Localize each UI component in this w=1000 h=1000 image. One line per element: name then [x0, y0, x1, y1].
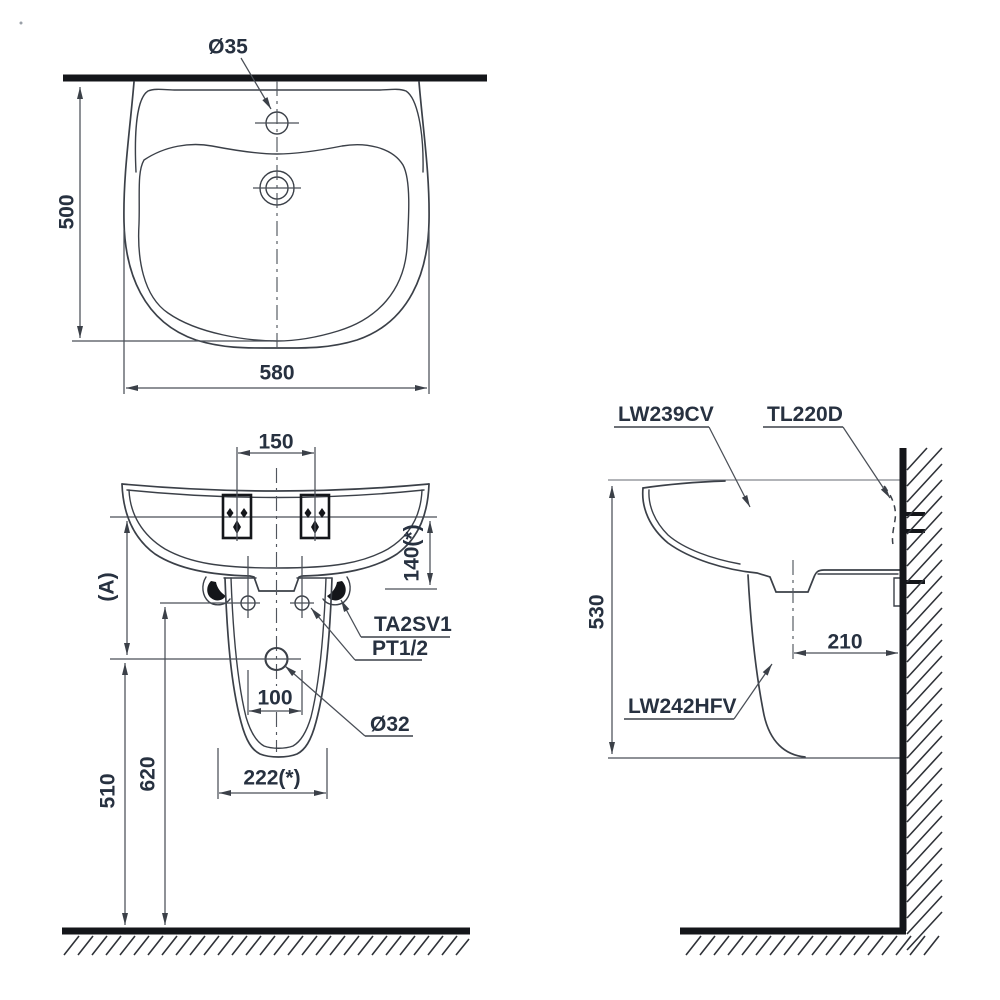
- dim-label-ref-height: (A): [96, 572, 119, 601]
- leader-basin-code: [709, 427, 750, 507]
- dim-label-pedestal-width: 222(*): [243, 767, 300, 790]
- label-thread-code: PT1/2: [372, 637, 428, 660]
- technical-drawing-svg: 500 580 Ø35 150: [0, 0, 1000, 1000]
- side-view: 530 210 LW239CV TL220D LW242HFV: [586, 403, 943, 955]
- dim-label-rim-height: 530: [586, 594, 609, 629]
- leader-thread-code: [311, 608, 355, 660]
- angle-valve-dashed: [884, 486, 895, 548]
- dim-label-width: 580: [259, 362, 294, 385]
- basin-top-side: [643, 481, 725, 488]
- label-valve-code: TL220D: [767, 403, 843, 426]
- dim-label-depth: 500: [56, 194, 79, 229]
- label-pedestal-code: LW242HFV: [628, 695, 737, 718]
- label-basin-code: LW239CV: [618, 403, 714, 426]
- stray-mark: [20, 22, 23, 25]
- dim-label-bolt-height: 620: [137, 756, 160, 791]
- basin-inner-side: [649, 490, 740, 564]
- lavatory-installation-drawing: 500 580 Ø35 150: [0, 0, 1000, 1000]
- rim-outer-front: [122, 484, 429, 491]
- dim-label-bolt-pitch: 100: [257, 687, 292, 710]
- basin-body-front: [122, 484, 429, 591]
- front-view: 150 (A) 510 620: [62, 431, 470, 956]
- floor-hatch-side: [686, 936, 939, 955]
- label-bracket-code: TA2SV1: [374, 613, 452, 636]
- hook-left: [207, 581, 226, 600]
- floor-hatch-front: [64, 936, 469, 955]
- label-drain-dia: Ø32: [370, 713, 410, 736]
- leader-pedestal-code: [734, 664, 772, 719]
- bowl-outline-plan: [139, 145, 409, 341]
- leader-valve-code: [843, 427, 890, 498]
- basin-inner-rim-plan: [135, 89, 423, 172]
- label-faucet-hole-dia: Ø35: [208, 36, 248, 59]
- leader-bracket-code: [341, 600, 361, 637]
- hook-right: [327, 581, 346, 600]
- wall-hatch: [907, 448, 942, 950]
- dim-label-faucet-centers: 150: [258, 431, 293, 454]
- plan-view: 500 580 Ø35: [56, 36, 488, 395]
- basin-profile-side: [643, 488, 901, 592]
- dim-label-drain-height: 510: [97, 773, 120, 808]
- leader-faucet-hole: [241, 58, 271, 109]
- dim-label-drain-offset: 210: [827, 631, 862, 654]
- dim-label-rim-to-drain: 140(*): [401, 524, 424, 581]
- basin-body-inner-front: [129, 490, 422, 568]
- pedestal-side: [748, 575, 805, 757]
